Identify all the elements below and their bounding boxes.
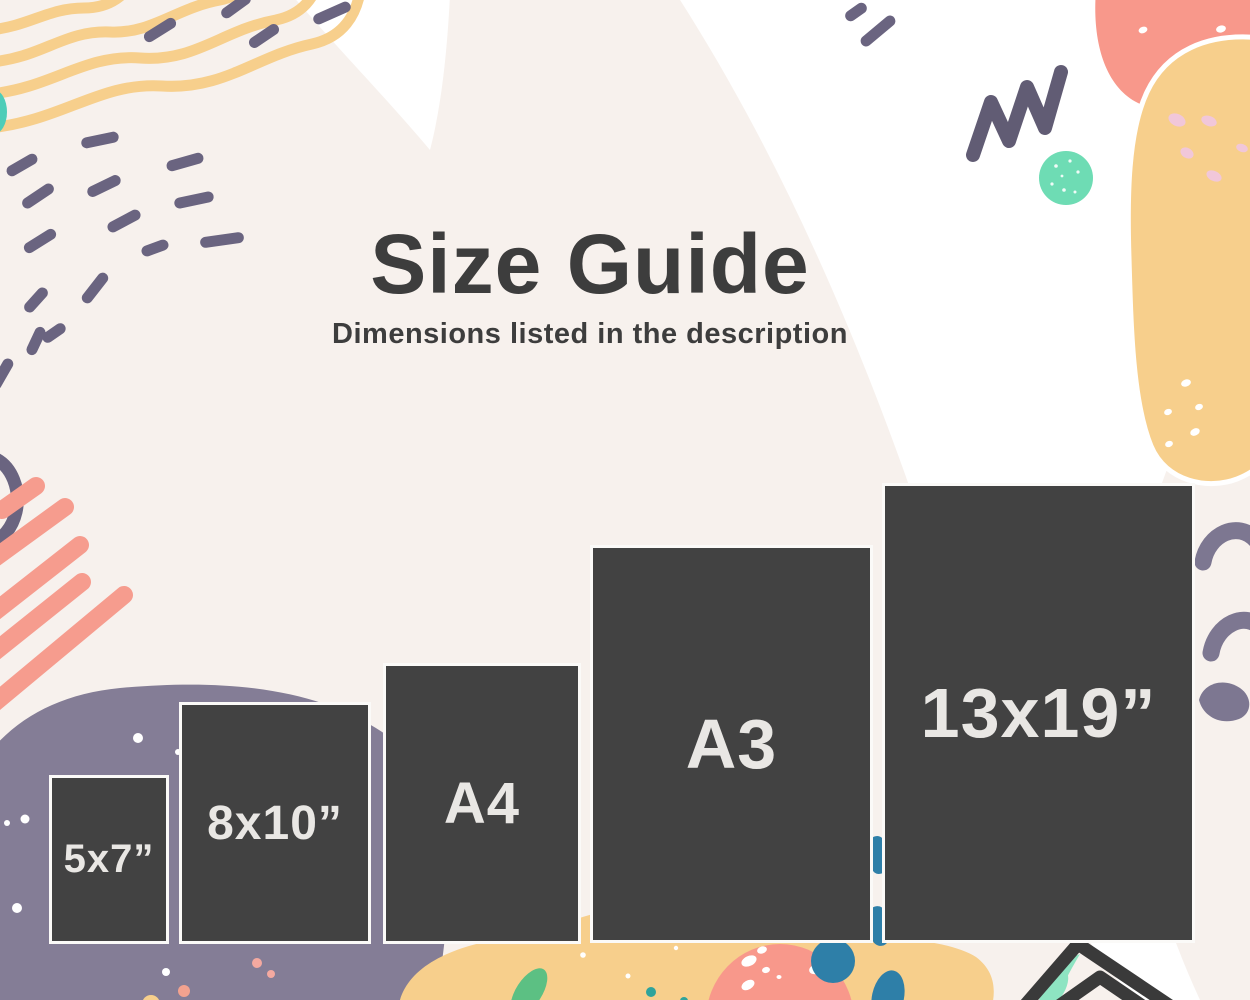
size-label-a3: A3 <box>686 704 777 784</box>
white-leaf <box>292 0 450 150</box>
chevron-outlines <box>1026 944 1200 1000</box>
mint-dotted-circle <box>1039 151 1093 205</box>
size-label-a4: A4 <box>444 770 520 837</box>
size-label-8x10: 8x10” <box>207 796 343 851</box>
purple-hooks-right <box>1199 531 1250 722</box>
size-label-5x7: 5x7” <box>64 837 155 882</box>
header: Size Guide Dimensions listed in the desc… <box>0 220 1180 351</box>
size-guide-canvas: Size Guide Dimensions listed in the desc… <box>0 0 1250 1000</box>
mint-accent-bottom-right <box>1036 954 1080 1000</box>
page-title: Size Guide <box>0 220 1180 308</box>
teal-dots <box>646 987 688 1000</box>
pink-circle-bottom <box>706 944 854 1000</box>
size-box-8x10: 8x10” <box>179 702 371 944</box>
zigzag-squiggle <box>973 72 1061 155</box>
size-box-a3: A3 <box>590 545 873 943</box>
size-box-13x19: 13x19” <box>882 483 1195 943</box>
green-leaf <box>503 962 554 1000</box>
coral-stripes <box>0 486 124 705</box>
salmon-blob-top-right <box>1095 0 1250 168</box>
size-label-13x19: 13x19” <box>921 673 1157 753</box>
page-subtitle: Dimensions listed in the description <box>0 318 1180 351</box>
yellow-contour-lines <box>0 0 360 128</box>
size-box-a4: A4 <box>383 663 581 944</box>
size-box-5x7: 5x7” <box>49 775 169 944</box>
ring-segment-left <box>0 458 17 541</box>
teal-sliver-left <box>0 90 7 134</box>
